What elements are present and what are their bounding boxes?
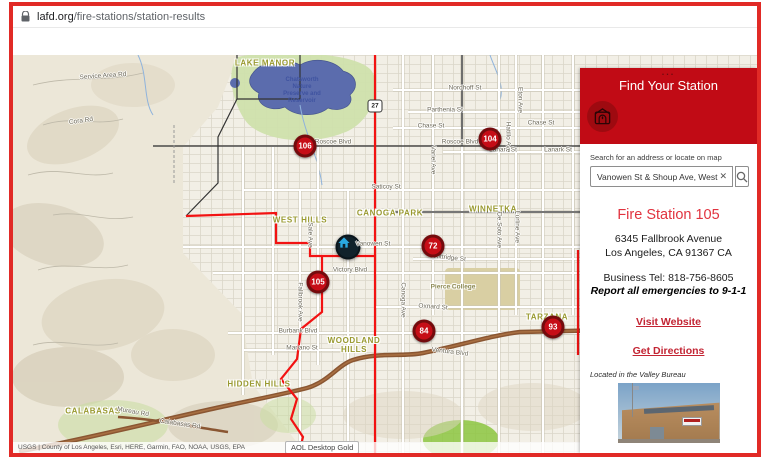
street-label: Vanowen St: [356, 241, 391, 248]
highway-27-shield: 27: [368, 100, 383, 113]
search-section: Search for an address or locate on map V…: [580, 144, 757, 193]
place-label: Pierce College: [431, 284, 476, 291]
street-label: Ventura Blvd: [431, 346, 468, 357]
station-photo: [618, 383, 720, 443]
street-label: Chase St: [528, 120, 555, 127]
street-label: Oxnard St: [418, 302, 448, 311]
street-label: Chase St: [418, 123, 445, 130]
selected-location-marker[interactable]: [336, 235, 361, 260]
place-label: CALABASAS: [65, 407, 121, 416]
station-name: Fire Station 105: [588, 207, 749, 223]
station-marker-84[interactable]: 84: [413, 320, 436, 343]
place-label: LAKE MANOR: [235, 59, 295, 68]
lock-icon: [21, 11, 30, 22]
street-label: Lurline Ave: [514, 211, 521, 243]
clear-search-icon[interactable]: ✕: [718, 171, 730, 182]
street-label: Hatillo Ave: [505, 122, 512, 153]
station-phone: Business Tel: 818-756-8605: [588, 272, 749, 284]
street-label: Mureau Rd: [117, 406, 150, 418]
url-path: /fire-stations/station-results: [74, 11, 205, 23]
station-marker-106[interactable]: 106: [294, 135, 317, 158]
panel-title: Find Your Station: [580, 78, 757, 93]
get-directions-link[interactable]: Get Directions: [588, 345, 749, 357]
street-label: Service Area Rd: [79, 71, 126, 81]
street-label: Sale Ave: [307, 222, 314, 248]
street-label: Eton Ave: [517, 87, 524, 113]
bureau-note: Located in the Valley Bureau: [590, 370, 757, 379]
street-label: Roscoe Blvd: [442, 139, 479, 146]
visit-website-link[interactable]: Visit Website: [588, 316, 749, 328]
place-label: WINNETKA: [469, 205, 517, 214]
place-label: HIDDEN HILLS: [227, 380, 290, 389]
station-marker-93[interactable]: 93: [542, 316, 565, 339]
street-label: Variel Ave: [430, 146, 437, 175]
search-input[interactable]: Vanowen St & Shoup Ave, West ✕: [590, 166, 733, 187]
search-button[interactable]: [735, 166, 749, 187]
aol-desktop-gold-tooltip: AOL Desktop Gold: [285, 441, 359, 453]
street-label: Parthenia St: [427, 107, 463, 114]
street-label: Victory Blvd: [333, 267, 367, 274]
street-label: Saticoy St: [371, 184, 400, 191]
search-icon: [736, 171, 748, 183]
station-address-line1: 6345 Fallbrook Avenue: [588, 232, 749, 246]
street-label: Lanark St: [544, 147, 572, 154]
street-label: Mariano St: [286, 345, 317, 352]
station-marker-105[interactable]: 105: [307, 271, 330, 294]
url-domain: lafd.org: [37, 11, 74, 23]
street-label: Calabasas Rd: [159, 418, 200, 431]
street-label: Cora Rd: [69, 116, 94, 126]
street-label: Canoga Ave: [400, 282, 407, 317]
station-marker-104[interactable]: 104: [479, 128, 502, 151]
panel-header: ... Find Your Station: [580, 68, 757, 144]
station-marker-72[interactable]: 72: [422, 235, 445, 258]
street-label: Nordhoff St: [449, 85, 482, 92]
panel-menu-dots[interactable]: ...: [580, 68, 757, 76]
page-content: Chatsworth Nature Preserve and Reservoir…: [13, 28, 757, 453]
find-station-panel: ... Find Your Station Search for an addr…: [580, 68, 757, 453]
lafd-station-logo-icon: [587, 101, 618, 132]
emergency-note: Report all emergencies to 9-1-1: [588, 285, 749, 299]
station-details: Fire Station 105 6345 Fallbrook Avenue L…: [580, 193, 757, 357]
place-label: WEST HILLS: [273, 216, 327, 225]
url-text: lafd.org/fire-stations/station-results: [37, 11, 205, 23]
search-input-value[interactable]: Vanowen St & Shoup Ave, West: [597, 172, 718, 182]
street-label: De Soto Ave: [496, 212, 503, 248]
street-label: Burbank Blvd: [279, 328, 318, 335]
place-label: WOODLAND HILLS: [328, 336, 381, 354]
search-label: Search for an address or locate on map: [590, 153, 747, 162]
browser-window: lafd.org/fire-stations/station-results: [9, 2, 761, 457]
reservoir-label: Chatsworth Nature Preserve and Reservoir: [283, 77, 321, 105]
url-bar[interactable]: lafd.org/fire-stations/station-results: [13, 6, 757, 28]
station-address-line2: Los Angeles, CA 91367 CA: [588, 246, 749, 260]
street-label: Fallbrook Ave: [297, 282, 304, 321]
street-label: Roscoe Blvd: [315, 139, 352, 146]
place-label: CANOGA PARK: [357, 209, 423, 218]
